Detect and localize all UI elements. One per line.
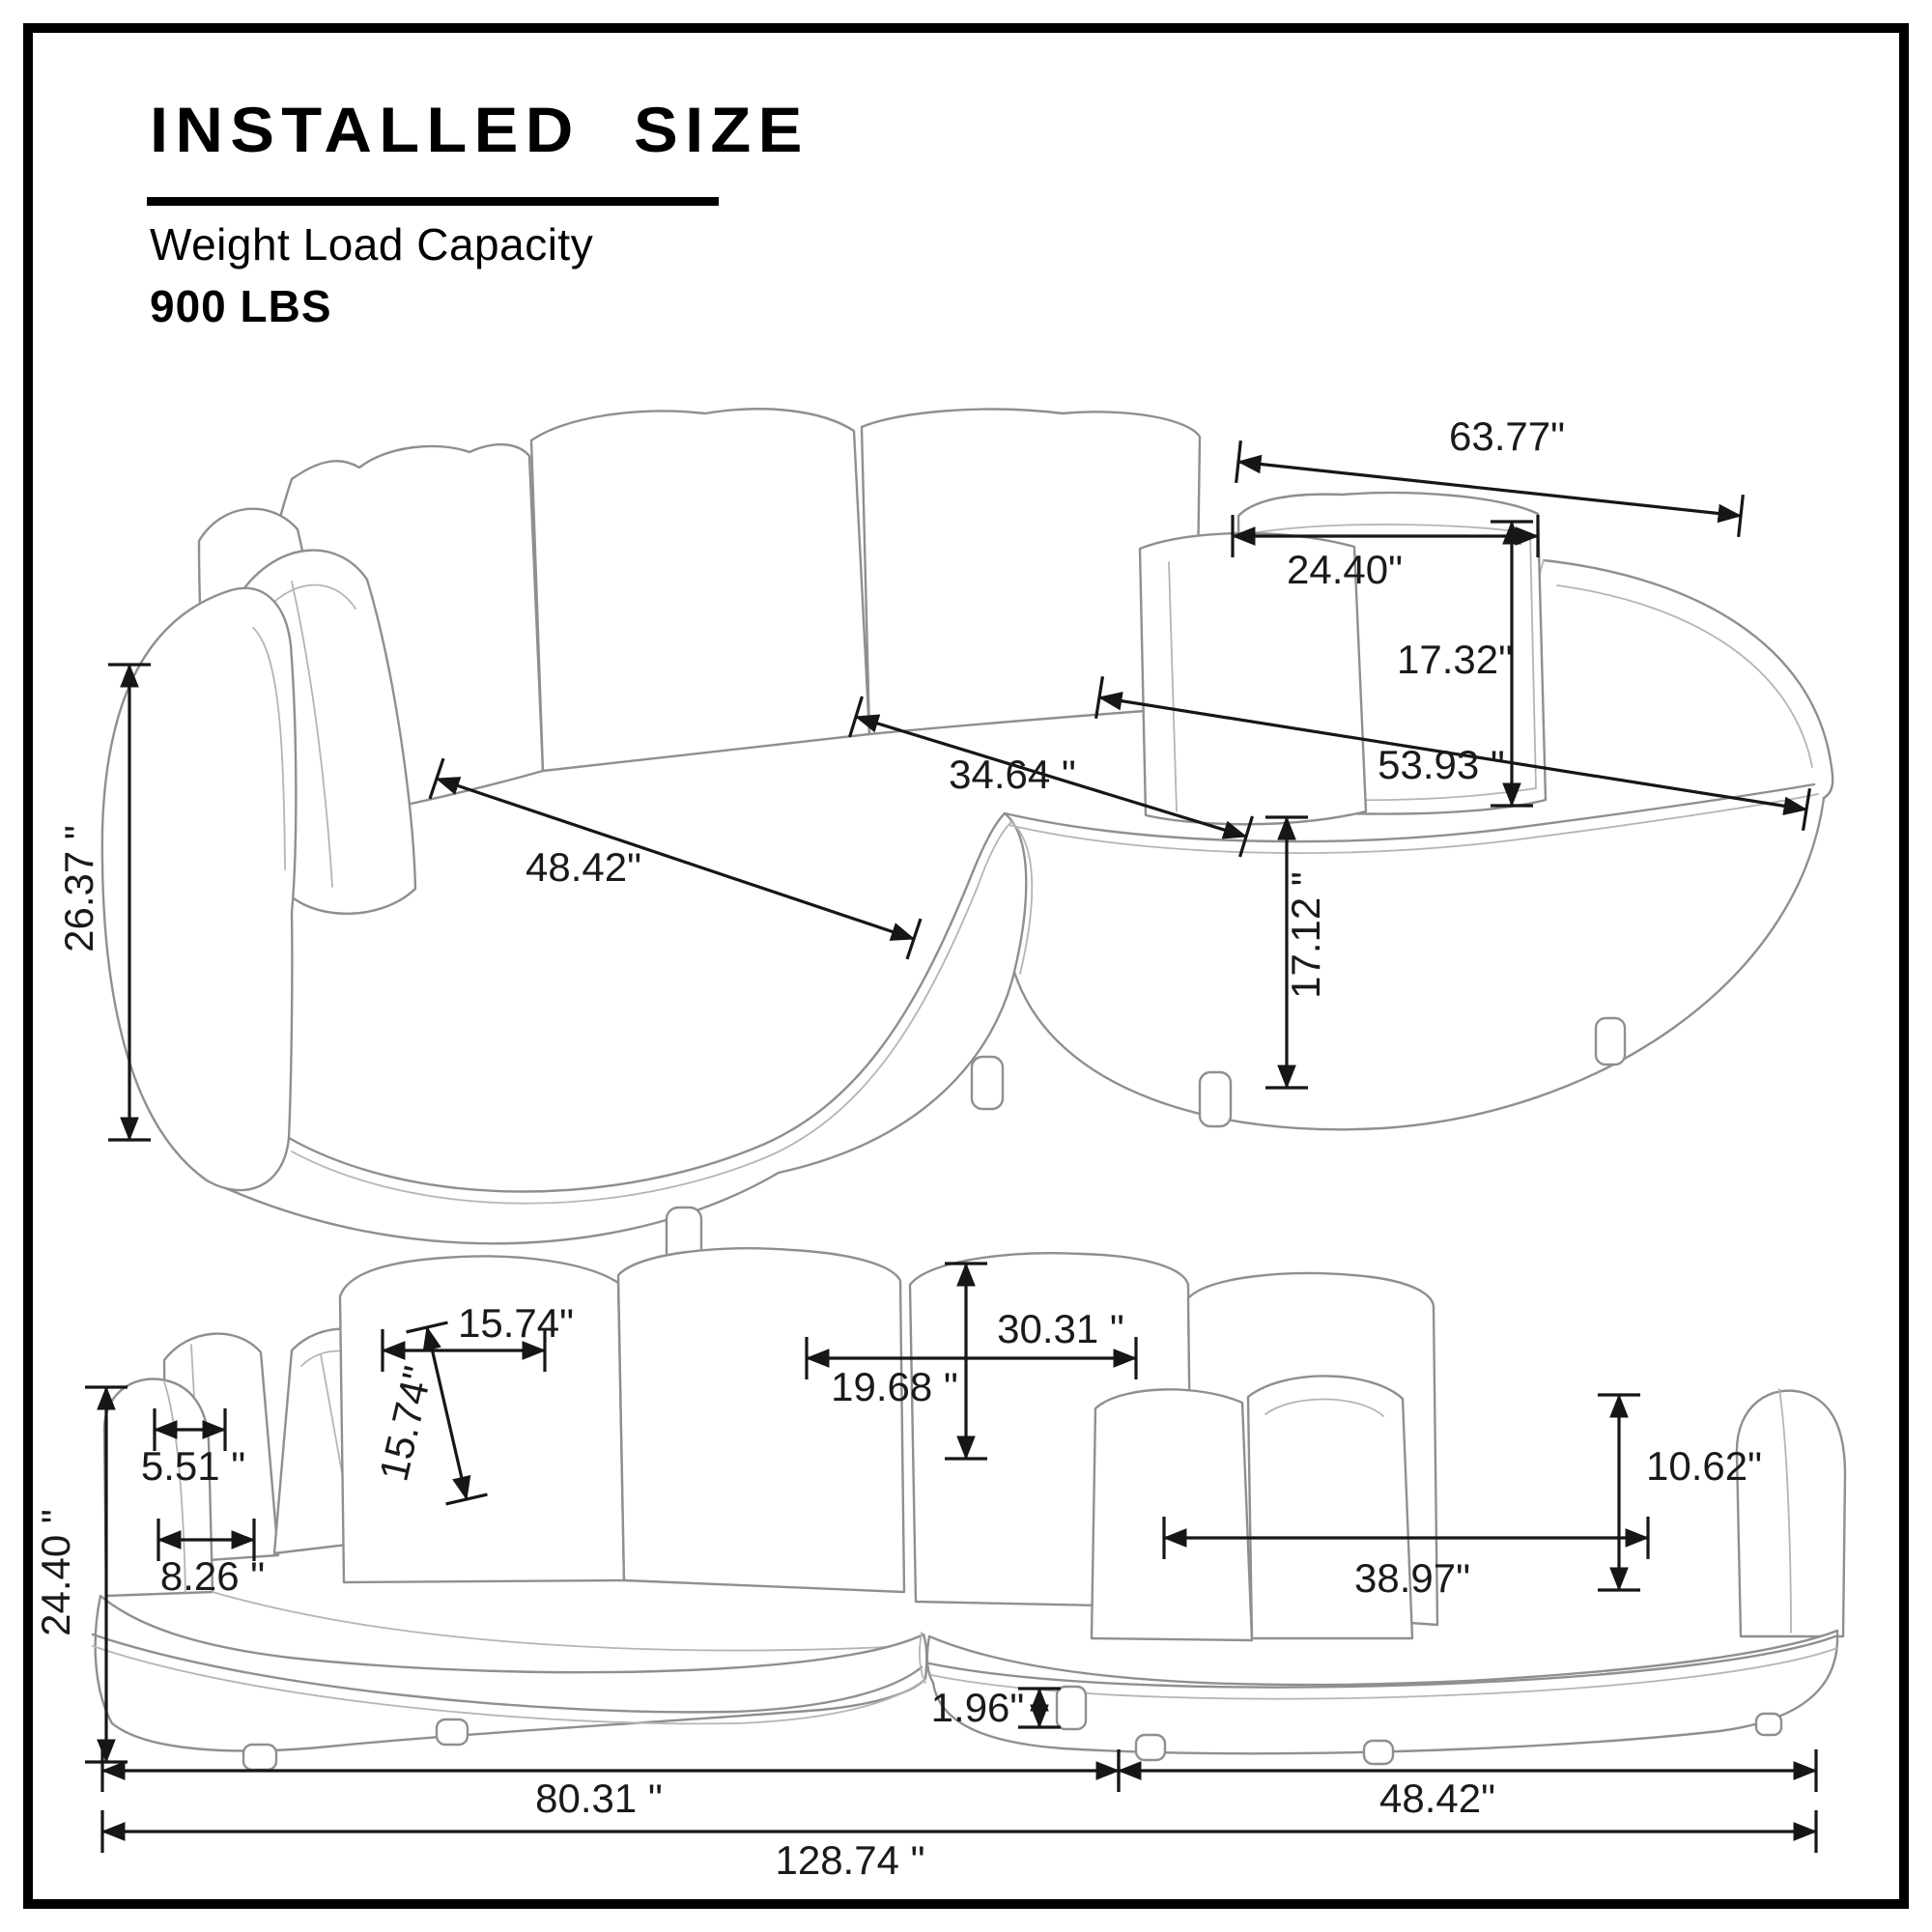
dimension-top-seat-height: 17.12 " — [1265, 817, 1328, 1088]
dimension-label: 26.37 " — [56, 825, 101, 952]
chaise-back-inner — [1557, 585, 1812, 767]
dimension-top-seat-diagonal: 48.42" — [430, 758, 921, 959]
dimension-front-total-width: 128.74 " — [102, 1810, 1816, 1883]
dimension-line — [437, 779, 914, 939]
back-cushion — [531, 409, 869, 771]
dimension-label: 48.42" — [526, 844, 641, 890]
dimension-label: 10.62" — [1646, 1443, 1762, 1489]
sofa-leg — [1364, 1741, 1393, 1764]
sofa-leg — [1057, 1687, 1086, 1729]
dimension-label: 34.64 " — [949, 752, 1076, 797]
dimension-label: 15.74" — [458, 1300, 574, 1346]
dimension-label: 24.40" — [1287, 547, 1403, 592]
sofa-leg — [1756, 1714, 1781, 1735]
sofa-leg — [243, 1745, 276, 1770]
dimension-label: 53.93 " — [1378, 742, 1505, 787]
dimension-label: 38.97" — [1354, 1555, 1470, 1601]
seat-back-line — [213, 1592, 908, 1650]
dimension-label: 30.31 " — [997, 1306, 1124, 1351]
dimension-label: 17.12 " — [1283, 871, 1328, 999]
dimension-label: 1.96" — [931, 1685, 1025, 1730]
sofa-leg — [1200, 1072, 1231, 1126]
installed-size-sheet: INSTALLED SIZE Weight Load Capacity 900 … — [0, 0, 1932, 1932]
left-arm — [102, 588, 297, 1190]
left-base — [96, 1596, 927, 1751]
dimension-label: 48.42" — [1379, 1776, 1495, 1821]
dimension-label: 63.77" — [1449, 413, 1565, 459]
dimension-front-right-width: 48.42" — [1119, 1749, 1816, 1821]
dimension-label: 17.32" — [1397, 637, 1513, 682]
chaise-back-outline — [1544, 560, 1833, 798]
sofa-top-view-sketch — [102, 409, 1833, 1264]
sofa-leg — [437, 1719, 468, 1745]
sofa-leg — [1596, 1018, 1625, 1065]
back-cushion — [618, 1248, 904, 1592]
chaise-base — [1014, 798, 1824, 1129]
installed-size-diagram: 63.77"24.40"17.32"34.64 "53.93 "48.42"17… — [0, 0, 1932, 1932]
dimension-label: 8.26 " — [160, 1553, 265, 1599]
dimension-label: 5.51 " — [141, 1443, 245, 1489]
dimension-label: 24.40 " — [33, 1509, 78, 1636]
dimension-label: 128.74 " — [775, 1837, 924, 1883]
throw-pillow — [1092, 1389, 1252, 1640]
sofa-leg — [972, 1057, 1003, 1109]
dimension-label: 80.31 " — [535, 1776, 663, 1821]
dimension-label: 19.68 " — [831, 1364, 958, 1409]
sofa-leg — [1136, 1735, 1165, 1760]
